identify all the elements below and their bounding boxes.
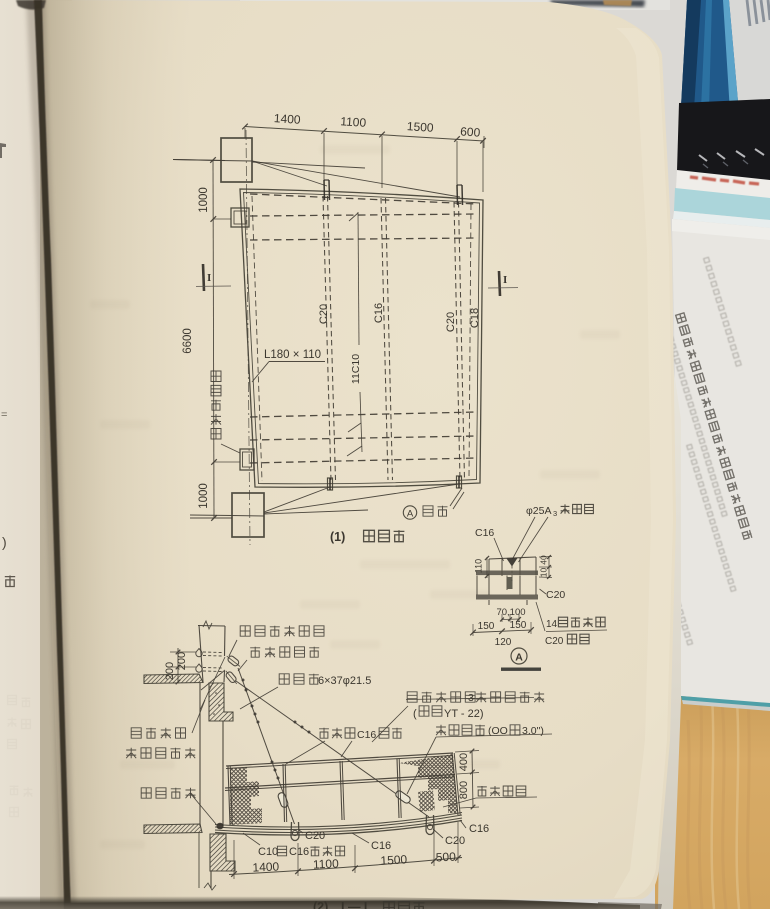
svg-text:200: 200	[176, 652, 188, 670]
svg-text:3.0"): 3.0")	[522, 725, 544, 737]
svg-text:A: A	[515, 652, 523, 664]
svg-text:400: 400	[458, 753, 470, 771]
svg-text:C10: C10	[258, 846, 278, 858]
svg-text:C20: C20	[546, 589, 565, 601]
svg-text:C16: C16	[469, 823, 489, 835]
svg-text:C16: C16	[289, 846, 309, 858]
svg-text:A: A	[407, 509, 414, 520]
svg-text:150: 150	[510, 620, 527, 631]
svg-text:1100: 1100	[313, 856, 340, 871]
svg-text:500: 500	[435, 849, 456, 864]
svg-text:): )	[2, 534, 7, 550]
svg-text:6×37φ21.5: 6×37φ21.5	[318, 675, 371, 687]
svg-text:1100: 1100	[340, 114, 367, 130]
svg-text:120: 120	[495, 637, 512, 648]
svg-text:10: 10	[538, 568, 548, 578]
svg-text:600: 600	[460, 124, 481, 139]
svg-text:(: (	[413, 708, 417, 720]
svg-text:C20: C20	[318, 304, 330, 324]
svg-text:14: 14	[546, 619, 558, 630]
svg-text:φ25A: φ25A	[526, 505, 552, 517]
svg-text:C16: C16	[475, 527, 494, 539]
svg-text:1400: 1400	[252, 859, 280, 874]
svg-text:1500: 1500	[380, 852, 408, 867]
svg-text:I: I	[207, 272, 211, 284]
svg-text:C16: C16	[373, 303, 385, 323]
svg-text:C20: C20	[445, 312, 457, 332]
svg-text:C20: C20	[445, 835, 465, 847]
svg-text:I: I	[503, 274, 507, 286]
svg-text:C20: C20	[545, 636, 564, 647]
svg-text:YT - 22): YT - 22)	[444, 708, 484, 720]
svg-text:=: =	[1, 409, 7, 421]
svg-text:3: 3	[553, 509, 557, 518]
svg-text:(2): (2)	[313, 900, 328, 909]
svg-text:L180 × 110: L180 × 110	[264, 349, 321, 361]
svg-text:150: 150	[478, 621, 495, 632]
svg-text:C20: C20	[305, 830, 325, 842]
svg-text:110: 110	[473, 559, 483, 573]
svg-text:C16: C16	[357, 729, 376, 741]
svg-text:11C10: 11C10	[350, 354, 362, 384]
svg-text:I — I: I — I	[341, 900, 367, 909]
svg-text:800: 800	[458, 781, 470, 799]
svg-text:200: 200	[164, 662, 176, 680]
svg-text:6600: 6600	[182, 328, 194, 354]
svg-text:C18: C18	[469, 308, 481, 328]
svg-text:1000: 1000	[198, 187, 210, 213]
svg-text:1400: 1400	[273, 111, 301, 127]
svg-text:1500: 1500	[406, 119, 434, 135]
svg-text:70,100: 70,100	[496, 607, 525, 618]
svg-text:(1): (1)	[330, 530, 345, 544]
svg-text:3: 3	[468, 692, 474, 704]
svg-text:1000: 1000	[198, 483, 210, 509]
svg-text:C16: C16	[371, 840, 391, 852]
